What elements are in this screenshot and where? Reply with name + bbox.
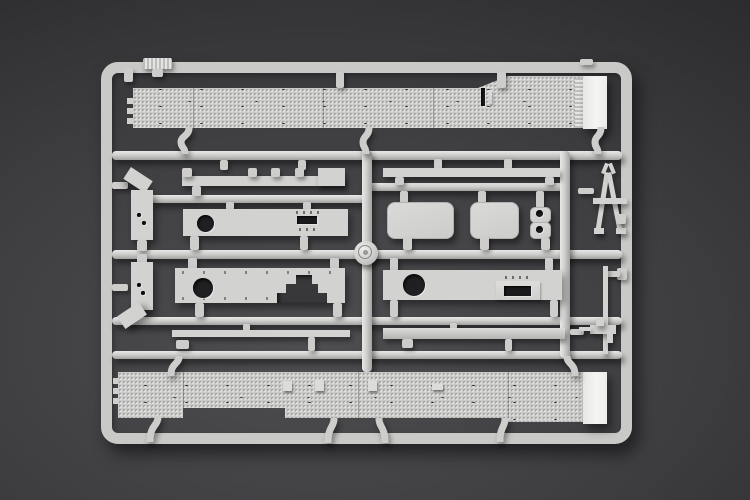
tow-bar-crossbar: [593, 198, 627, 204]
hatch-cover-small: [470, 202, 519, 239]
gate-stub: [616, 214, 626, 224]
plate-slot-hole: [297, 216, 317, 224]
deck-seam: [508, 372, 509, 418]
deck-edge-notch: [113, 388, 118, 394]
gate-stub: [333, 303, 342, 317]
gate-stub: [395, 177, 404, 185]
gate-stub: [390, 300, 398, 317]
white-end-cap-bottom: [583, 372, 607, 424]
gate-stub: [607, 271, 620, 277]
gate-s-curve: [495, 418, 510, 442]
gate-s-curve: [145, 416, 163, 442]
gate-s-curve: [590, 127, 606, 154]
plate-round-hole: [193, 278, 213, 298]
deck-slot: [481, 88, 485, 106]
gate-s-curve: [323, 418, 339, 443]
flap-bolt-hole: [141, 291, 145, 295]
rivet-row: [299, 228, 317, 231]
gate-stub: [308, 337, 315, 351]
gate-s-curve: [166, 356, 184, 376]
side-sill-bar: [383, 168, 560, 177]
machine-gun-barrel: [579, 327, 591, 331]
gate-stub: [190, 236, 199, 250]
ribbed-molding-tag: [143, 58, 172, 69]
mud-flap-lower: [131, 262, 153, 310]
rivet-row: [296, 211, 320, 214]
rail-tooth: [248, 168, 257, 177]
deck-edge-notch: [127, 108, 133, 114]
rail-tooth: [295, 168, 304, 177]
plate-slot-hole: [504, 286, 531, 296]
strip-tab: [176, 340, 189, 349]
bolt-row: [182, 271, 340, 274]
flap-bolt-hole: [142, 221, 146, 225]
channel-strip: [383, 328, 565, 339]
gate-stub: [195, 303, 204, 317]
gate-stub: [300, 236, 308, 250]
gate-s-curve: [374, 418, 390, 443]
gate-stub: [112, 284, 128, 291]
machine-gun-sight: [596, 318, 604, 326]
gate-stub: [578, 188, 594, 194]
strip-tab: [402, 339, 413, 348]
deck-clip: [432, 384, 443, 390]
machine-gun-grip: [607, 334, 613, 343]
molding-tag-stub: [152, 69, 163, 77]
mud-flap-upper: [131, 190, 153, 240]
gate-s-curve: [358, 127, 374, 154]
deck-seam: [323, 88, 324, 128]
flap-bolt-hole: [137, 283, 141, 287]
gate-stub: [497, 72, 506, 88]
deck-edge-notch: [113, 398, 118, 404]
gate-stub: [403, 237, 412, 250]
medallion-core: [363, 250, 368, 255]
flap-bolt-hole: [137, 213, 141, 217]
gate-stub: [541, 238, 550, 250]
white-end-cap-top: [583, 76, 607, 129]
logo-medallion: [354, 241, 378, 265]
tow-bar-foot: [594, 228, 604, 234]
bolt-row: [182, 297, 277, 300]
sprue-letter-tab: [124, 68, 133, 82]
machine-gun-body: [590, 325, 616, 334]
deck-edge-notch: [127, 118, 133, 124]
runner-horizontal-2-left: [150, 195, 366, 203]
gate-stub: [137, 240, 147, 251]
rail-tooth: [182, 168, 192, 177]
thin-strip: [172, 330, 350, 337]
gate-s-curve: [562, 356, 580, 376]
rivet-row: [505, 276, 531, 279]
deck-edge-notch: [113, 378, 118, 384]
plate-round-hole: [403, 274, 425, 296]
rail-tooth: [271, 168, 280, 177]
gate-s-curve: [176, 127, 194, 154]
deck-clip: [283, 381, 292, 391]
deck-end-ribs: [575, 78, 583, 128]
gate-stub: [480, 237, 489, 250]
deck-seam: [193, 88, 194, 128]
gate-stub: [220, 160, 228, 170]
hatch-cover-large: [387, 202, 454, 239]
gate-stub: [336, 72, 344, 88]
rail-end-block: [318, 168, 345, 186]
deck-clip: [315, 380, 324, 391]
gate-stub: [112, 182, 128, 189]
gate-stub: [536, 191, 544, 208]
photo-stage: [0, 0, 750, 500]
frame-top-tab: [580, 59, 593, 65]
tow-bar-foot: [616, 228, 626, 234]
runner-vertical-right: [560, 151, 570, 358]
lamp-pad-hole: [536, 226, 543, 233]
deck-seam: [358, 372, 359, 418]
gate-stub: [545, 177, 554, 185]
deck-seam: [433, 88, 434, 128]
gate-stub: [192, 186, 201, 196]
plate-round-hole: [197, 215, 214, 232]
deck-slot-rib: [489, 90, 492, 104]
deck-edge-notch: [127, 98, 133, 104]
lamp-pad-hole: [536, 210, 543, 217]
gate-stub: [505, 339, 512, 351]
gate-stub: [550, 300, 558, 317]
deck-clip: [368, 380, 377, 391]
